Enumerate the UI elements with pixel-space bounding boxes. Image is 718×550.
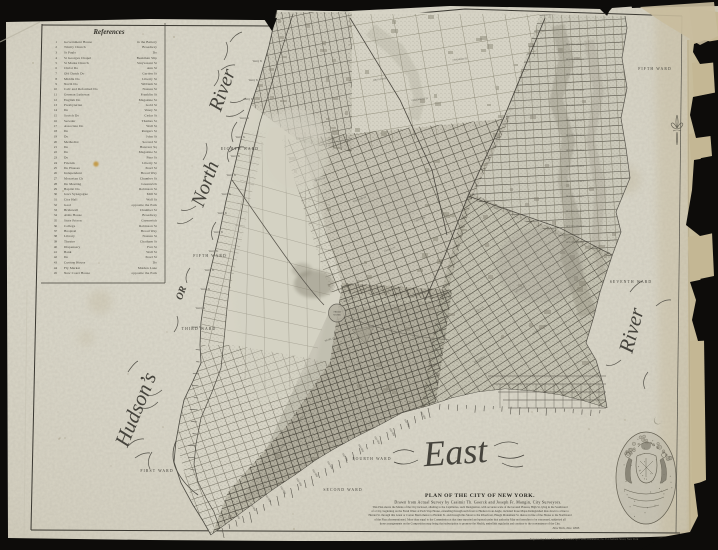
svg-text:State Prison: State Prison	[64, 219, 82, 223]
svg-text:Stuyvesant St: Stuyvesant St	[137, 61, 157, 65]
svg-text:Nassau St: Nassau St	[143, 234, 157, 238]
svg-text:31: 31	[54, 198, 58, 202]
svg-text:22: 22	[54, 150, 58, 154]
svg-text:Second St: Second St	[142, 140, 157, 144]
svg-text:34: 34	[54, 213, 58, 217]
svg-text:HESTER STREET: HESTER STREET	[566, 73, 585, 76]
svg-text:Associate Do: Associate Do	[64, 124, 84, 128]
svg-text:Vestry St: Vestry St	[201, 288, 211, 291]
svg-text:Moravian Ch: Moravian Ch	[64, 177, 83, 181]
svg-text:18: 18	[54, 129, 58, 133]
svg-text:Gold St: Gold St	[146, 103, 157, 107]
svg-text:17: 17	[54, 124, 58, 128]
svg-text:Government House: Government House	[64, 40, 93, 44]
svg-text:HESTER STREET: HESTER STREET	[566, 134, 585, 137]
svg-text:City Hall: City Hall	[64, 198, 78, 202]
svg-text:Liberty St: Liberty St	[142, 161, 157, 165]
svg-text:SECOND WARD: SECOND WARD	[323, 488, 362, 492]
svg-text:Broadway: Broadway	[142, 45, 157, 49]
svg-text:opposite the Park: opposite the Park	[132, 271, 158, 275]
svg-text:Bridewell: Bridewell	[64, 208, 78, 212]
svg-text:Hospital: Hospital	[64, 229, 76, 233]
svg-text:41: 41	[54, 250, 58, 254]
svg-text:Seceder: Seceder	[64, 119, 76, 123]
svg-text:Cedar St: Cedar St	[144, 114, 157, 118]
svg-text:Fly Market: Fly Market	[64, 266, 80, 270]
svg-text:Pearl St: Pearl St	[145, 166, 157, 170]
svg-text:FIRST WARD: FIRST WARD	[140, 469, 173, 473]
svg-text:Do: Do	[64, 156, 69, 160]
svg-text:Hanover Sq: Hanover Sq	[140, 145, 157, 149]
svg-text:PLAN OF THE CITY OF NEW YORK.: PLAN OF THE CITY OF NEW YORK.	[425, 493, 535, 499]
svg-text:HESTER STREET: HESTER STREET	[566, 58, 585, 61]
svg-text:Garden St: Garden St	[142, 72, 157, 76]
svg-text:Magazine St: Magazine St	[139, 150, 157, 154]
svg-text:Wall St: Wall St	[146, 250, 157, 254]
svg-text:13: 13	[54, 103, 58, 107]
svg-text:St Georges Chapel: St Georges Chapel	[64, 56, 91, 60]
svg-text:HESTER STREET: HESTER STREET	[566, 180, 585, 183]
svg-text:Chatham St: Chatham St	[140, 240, 157, 244]
svg-text:Robinson St: Robinson St	[139, 187, 157, 191]
svg-text:Vesey St: Vesey St	[144, 108, 157, 112]
svg-text:Do: Do	[64, 145, 69, 149]
svg-text:HESTER STREET: HESTER STREET	[566, 149, 585, 152]
svg-text:10: 10	[54, 87, 58, 91]
svg-text:HESTER STREET: HESTER STREET	[566, 241, 585, 244]
svg-text:36: 36	[54, 224, 58, 228]
svg-text:Broadway: Broadway	[142, 213, 157, 217]
svg-text:Old Dutch Do: Old Dutch Do	[64, 72, 85, 76]
svg-text:St Pauls: St Pauls	[64, 51, 76, 55]
svg-text:23: 23	[54, 156, 58, 160]
svg-text:27: 27	[54, 177, 58, 181]
svg-text:EIGHTH WARD: EIGHTH WARD	[221, 147, 259, 151]
svg-text:21: 21	[54, 145, 58, 149]
svg-text:Do Meeting: Do Meeting	[64, 182, 82, 186]
svg-text:North Do: North Do	[64, 82, 78, 86]
svg-text:44: 44	[54, 266, 58, 270]
svg-text:Jews Synagogue: Jews Synagogue	[64, 192, 88, 196]
svg-text:William St: William St	[141, 82, 157, 86]
svg-text:Broad Way: Broad Way	[141, 171, 157, 175]
svg-text:Pearl St: Pearl St	[145, 255, 157, 259]
svg-text:11: 11	[54, 93, 57, 97]
svg-text:19: 19	[54, 135, 58, 139]
svg-text:St Marks Church: St Marks Church	[64, 61, 89, 65]
svg-text:Ann St: Ann St	[147, 66, 157, 70]
svg-text:Rutgers St: Rutgers St	[142, 129, 157, 133]
svg-text:Pine St: Pine St	[147, 156, 158, 160]
svg-text:Do Houses: Do Houses	[64, 166, 80, 170]
svg-text:Baptist Do: Baptist Do	[64, 187, 80, 191]
svg-text:HESTER STREET: HESTER STREET	[566, 43, 585, 46]
svg-text:Vestry St: Vestry St	[214, 231, 224, 234]
svg-text:Do: Do	[153, 261, 158, 265]
svg-text:Alms House: Alms House	[64, 213, 82, 217]
svg-text:35: 35	[54, 219, 58, 223]
svg-text:HESTER STREET: HESTER STREET	[566, 165, 585, 168]
svg-text:Maiden Lane: Maiden Lane	[138, 266, 158, 270]
svg-text:Calv and Reformed Do: Calv and Reformed Do	[64, 87, 98, 91]
svg-text:FIFTH WARD: FIFTH WARD	[638, 67, 672, 71]
svg-text:those arrangements on the Comp: those arrangements on the Composition ma…	[380, 521, 561, 525]
svg-text:Nassau St: Nassau St	[143, 87, 157, 91]
svg-text:42: 42	[54, 255, 58, 259]
svg-text:Trinity Church: Trinity Church	[64, 45, 86, 49]
svg-text:Do: Do	[64, 129, 69, 133]
svg-text:15: 15	[54, 114, 58, 118]
svg-text:HESTER STREET: HESTER STREET	[566, 210, 585, 213]
svg-text:12: 12	[54, 98, 58, 102]
svg-text:WATER: WATER	[333, 314, 341, 317]
svg-text:Broad Way: Broad Way	[141, 229, 157, 233]
svg-text:39: 39	[54, 240, 58, 244]
svg-text:in the Battery: in the Battery	[137, 40, 157, 44]
svg-text:Magazine St: Magazine St	[139, 98, 157, 102]
svg-text:25: 25	[54, 166, 58, 170]
svg-text:SEVENTH WARD: SEVENTH WARD	[610, 280, 653, 284]
svg-text:37: 37	[54, 229, 58, 233]
svg-text:German Lutheran: German Lutheran	[64, 93, 90, 97]
svg-text:Thames St: Thames St	[142, 119, 157, 123]
svg-text:Vestry St: Vestry St	[209, 250, 219, 253]
svg-text:Wall St: Wall St	[146, 198, 157, 202]
svg-text:Vestry St: Vestry St	[222, 193, 232, 196]
svg-text:Christ Do: Christ Do	[64, 66, 78, 70]
svg-text:Greenwich: Greenwich	[141, 219, 157, 223]
svg-text:Vestry St: Vestry St	[192, 326, 202, 329]
svg-text:HESTER STREET: HESTER STREET	[566, 89, 585, 92]
svg-text:opposite the Park: opposite the Park	[132, 203, 158, 207]
svg-text:Franklin St: Franklin St	[141, 93, 157, 97]
svg-text:16: 16	[54, 119, 58, 123]
svg-text:28: 28	[54, 182, 58, 186]
svg-text:Do: Do	[64, 108, 69, 112]
svg-text:College: College	[64, 224, 76, 228]
svg-text:Middle Do: Middle Do	[64, 77, 80, 81]
svg-text:43: 43	[54, 261, 58, 265]
svg-text:Chamber St: Chamber St	[140, 177, 157, 181]
svg-text:Robinson St: Robinson St	[139, 224, 157, 228]
svg-text:29: 29	[54, 187, 58, 191]
svg-text:Vestry St: Vestry St	[236, 136, 246, 139]
svg-text:Greenwich: Greenwich	[141, 182, 157, 186]
svg-text:Gaol: Gaol	[64, 203, 71, 207]
svg-text:Friends: Friends	[64, 161, 76, 165]
svg-text:Vestry St: Vestry St	[240, 117, 250, 120]
svg-text:East: East	[421, 430, 490, 475]
svg-text:Do: Do	[64, 135, 69, 139]
svg-text:Independent: Independent	[64, 171, 82, 175]
svg-text:24: 24	[54, 161, 58, 165]
svg-text:Dispensary: Dispensary	[64, 245, 81, 249]
svg-text:HESTER STREET: HESTER STREET	[566, 119, 585, 122]
svg-text:Vestry St: Vestry St	[205, 269, 215, 272]
svg-text:45: 45	[54, 271, 58, 275]
svg-text:HESTER STREET: HESTER STREET	[566, 195, 585, 198]
svg-text:Vestry St: Vestry St	[249, 79, 259, 82]
svg-text:FRESH: FRESH	[334, 312, 341, 314]
svg-text:FOURTH WARD: FOURTH WARD	[352, 457, 391, 461]
svg-text:20: 20	[54, 140, 58, 144]
svg-text:Methodist: Methodist	[64, 140, 79, 144]
svg-text:John St: John St	[146, 135, 157, 139]
svg-text:Do: Do	[64, 255, 69, 259]
svg-text:FIFTH WARD: FIFTH WARD	[193, 254, 227, 258]
svg-text:Engraved by Peter Maverick. Pu: Engraved by Peter Maverick. Published by…	[530, 538, 639, 541]
svg-text:References: References	[93, 29, 125, 36]
svg-text:Presbyterian: Presbyterian	[64, 103, 82, 107]
svg-text:Wall St: Wall St	[146, 124, 157, 128]
svg-text:Bank: Bank	[64, 250, 72, 254]
svg-text:English Do: English Do	[64, 98, 81, 102]
svg-text:Vestry St: Vestry St	[244, 98, 254, 101]
svg-text:Vestry St: Vestry St	[231, 155, 241, 158]
svg-text:40: 40	[54, 245, 58, 249]
svg-text:Scotch Do: Scotch Do	[64, 114, 79, 118]
svg-text:Do: Do	[153, 51, 158, 55]
svg-text:30: 30	[54, 192, 58, 196]
svg-text:Chamber St: Chamber St	[140, 208, 157, 212]
svg-text:Fair St: Fair St	[147, 245, 157, 249]
svg-text:New Court House: New Court House	[64, 271, 90, 275]
svg-text:33: 33	[54, 208, 58, 212]
svg-text:Beekman Slip: Beekman Slip	[137, 56, 158, 60]
svg-text:Vestry St: Vestry St	[253, 60, 263, 63]
svg-text:Do: Do	[64, 150, 69, 154]
svg-text:Vestry St: Vestry St	[196, 307, 206, 310]
svg-text:38: 38	[54, 234, 58, 238]
svg-text:Liberty St: Liberty St	[142, 77, 157, 81]
svg-text:Custom House: Custom House	[64, 261, 86, 265]
svg-text:Theatre: Theatre	[64, 240, 76, 244]
svg-text:Vestry St: Vestry St	[227, 174, 237, 177]
svg-text:HESTER STREET: HESTER STREET	[566, 104, 585, 107]
svg-text:14: 14	[54, 108, 58, 112]
svg-text:32: 32	[54, 203, 58, 207]
svg-text:HESTER STREET: HESTER STREET	[566, 225, 585, 228]
svg-text:Library: Library	[64, 234, 75, 238]
svg-text:Vestry St: Vestry St	[218, 212, 228, 215]
svg-text:Mill St: Mill St	[147, 192, 157, 196]
svg-text:26: 26	[54, 171, 58, 175]
